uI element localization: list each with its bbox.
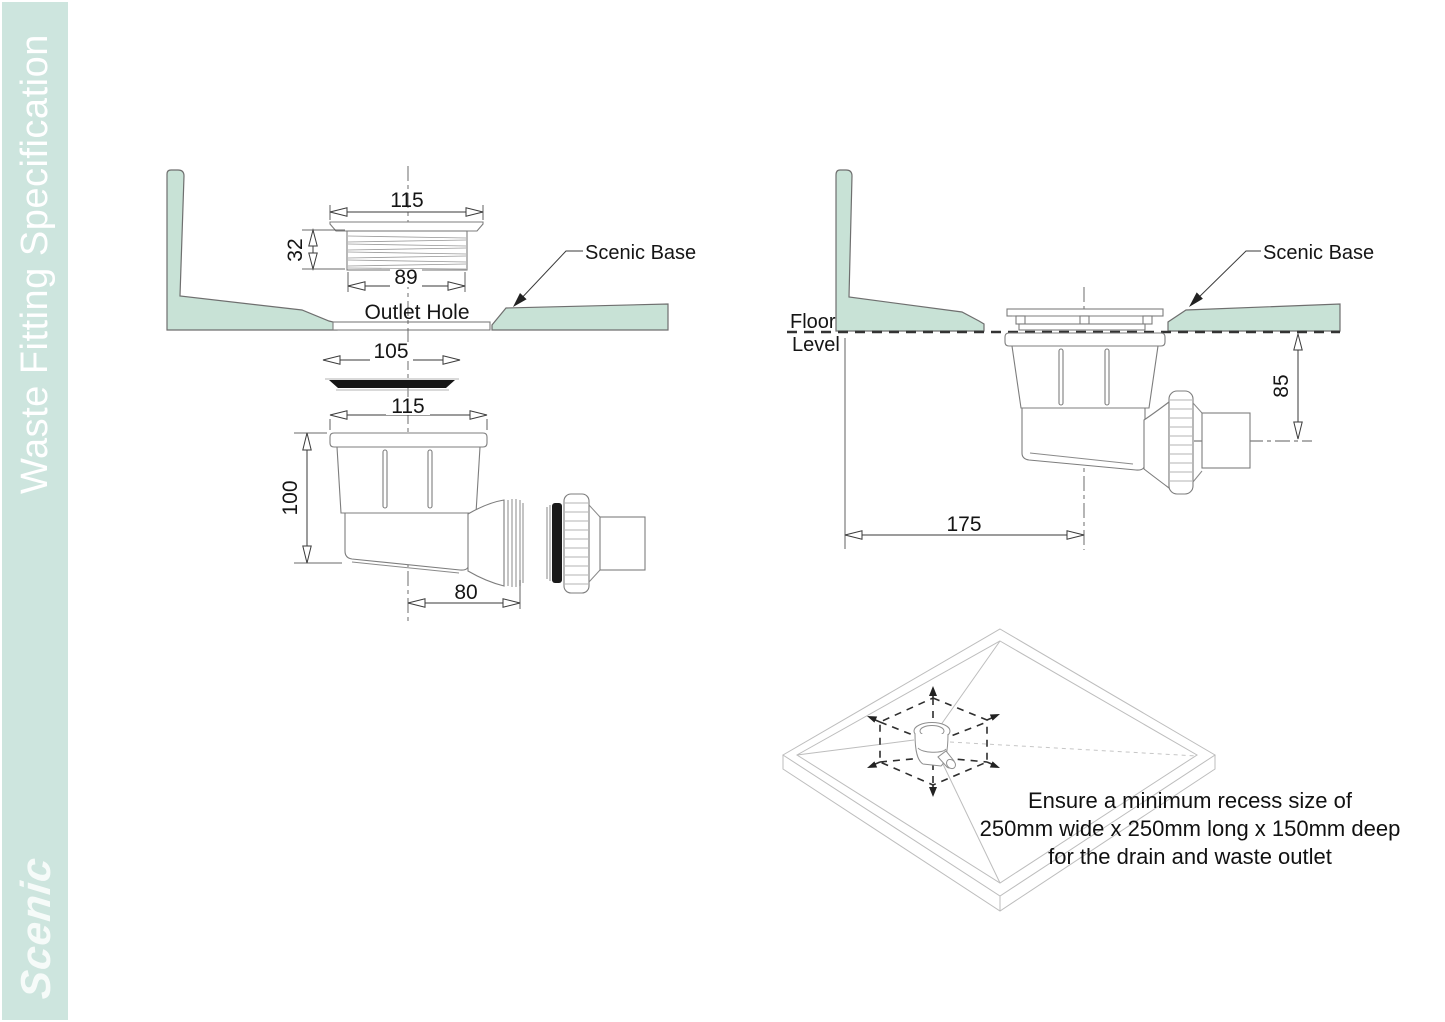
dim-outlet-depth-text: 85 bbox=[1270, 374, 1293, 397]
dim-wall-offset-text: 175 bbox=[946, 513, 981, 536]
arrow-down-icon bbox=[929, 787, 937, 797]
dimension-thread-height: 32 bbox=[284, 230, 345, 269]
compression-fitting bbox=[547, 494, 645, 593]
dimension-flange-width: 115 bbox=[330, 189, 483, 220]
waste-fitting-specification-page: { "sidebar": { "title": "Waste Fitting S… bbox=[0, 0, 1445, 1022]
base-right-profile bbox=[1168, 304, 1340, 331]
arrow-down-left-icon bbox=[867, 761, 877, 768]
scenic-base-callout-left: Scenic Base bbox=[513, 242, 696, 307]
recess-note-line2: 250mm wide x 250mm long x 150mm deep bbox=[948, 815, 1432, 843]
dim-thread-width-text: 89 bbox=[394, 266, 417, 289]
arrow-up-right-icon bbox=[990, 714, 1000, 721]
scenic-base-label-right: Scenic Base bbox=[1263, 242, 1374, 264]
base-left-profile bbox=[836, 170, 984, 331]
base-left-profile bbox=[167, 170, 337, 330]
leader-arrow-icon bbox=[1189, 292, 1203, 307]
dimension-seal-width: 105 bbox=[323, 340, 460, 364]
trap-side-outlet bbox=[1144, 391, 1250, 494]
outlet-hole-label: Outlet Hole bbox=[364, 301, 469, 324]
dimension-trap-height: 100 bbox=[279, 433, 342, 563]
left-section-drawing: 115 32 89 Outlet Hole 105 bbox=[167, 166, 696, 622]
dim-seal-width-text: 105 bbox=[373, 340, 408, 363]
arrow-up-left-icon bbox=[867, 716, 877, 723]
scenic-base-label-left: Scenic Base bbox=[585, 242, 696, 264]
level-label: Level bbox=[792, 334, 840, 356]
dimension-outlet-depth: 85 bbox=[1270, 334, 1302, 439]
waste-trap-body bbox=[330, 433, 487, 573]
drain-fitting bbox=[914, 723, 957, 771]
recess-note-line1: Ensure a minimum recess size of bbox=[948, 787, 1432, 815]
recess-note-line3: for the drain and waste outlet bbox=[948, 843, 1432, 871]
o-ring bbox=[552, 503, 562, 583]
fold-line-left bbox=[797, 740, 914, 755]
rubber-seal bbox=[329, 380, 455, 388]
dim-outlet-offset-text: 80 bbox=[454, 581, 477, 604]
flange-assembly bbox=[1007, 309, 1163, 330]
right-section-drawing: Floor Level bbox=[787, 170, 1374, 550]
pipe-stub bbox=[600, 517, 645, 570]
arrow-down-right-icon bbox=[990, 761, 1000, 768]
recess-note: Ensure a minimum recess size of 250mm wi… bbox=[948, 787, 1432, 871]
dim-flange-width-text: 115 bbox=[390, 189, 423, 212]
dim-trap-width-text: 115 bbox=[391, 395, 424, 418]
pipe-stub bbox=[1202, 413, 1250, 468]
base-right-profile bbox=[492, 304, 668, 330]
trap-side-outlet bbox=[468, 499, 523, 587]
dim-trap-height-text: 100 bbox=[279, 480, 302, 515]
dim-thread-height-text: 32 bbox=[284, 238, 307, 261]
scenic-base-callout-right: Scenic Base bbox=[1189, 242, 1374, 307]
ribbed-nut bbox=[564, 494, 589, 593]
arrow-up-icon bbox=[929, 686, 937, 696]
waste-trap-body bbox=[1005, 333, 1165, 470]
waste-flange bbox=[330, 222, 483, 231]
dimension-trap-width: 115 bbox=[330, 395, 487, 430]
floor-label: Floor bbox=[790, 311, 836, 333]
ribbed-nut bbox=[1169, 391, 1193, 494]
